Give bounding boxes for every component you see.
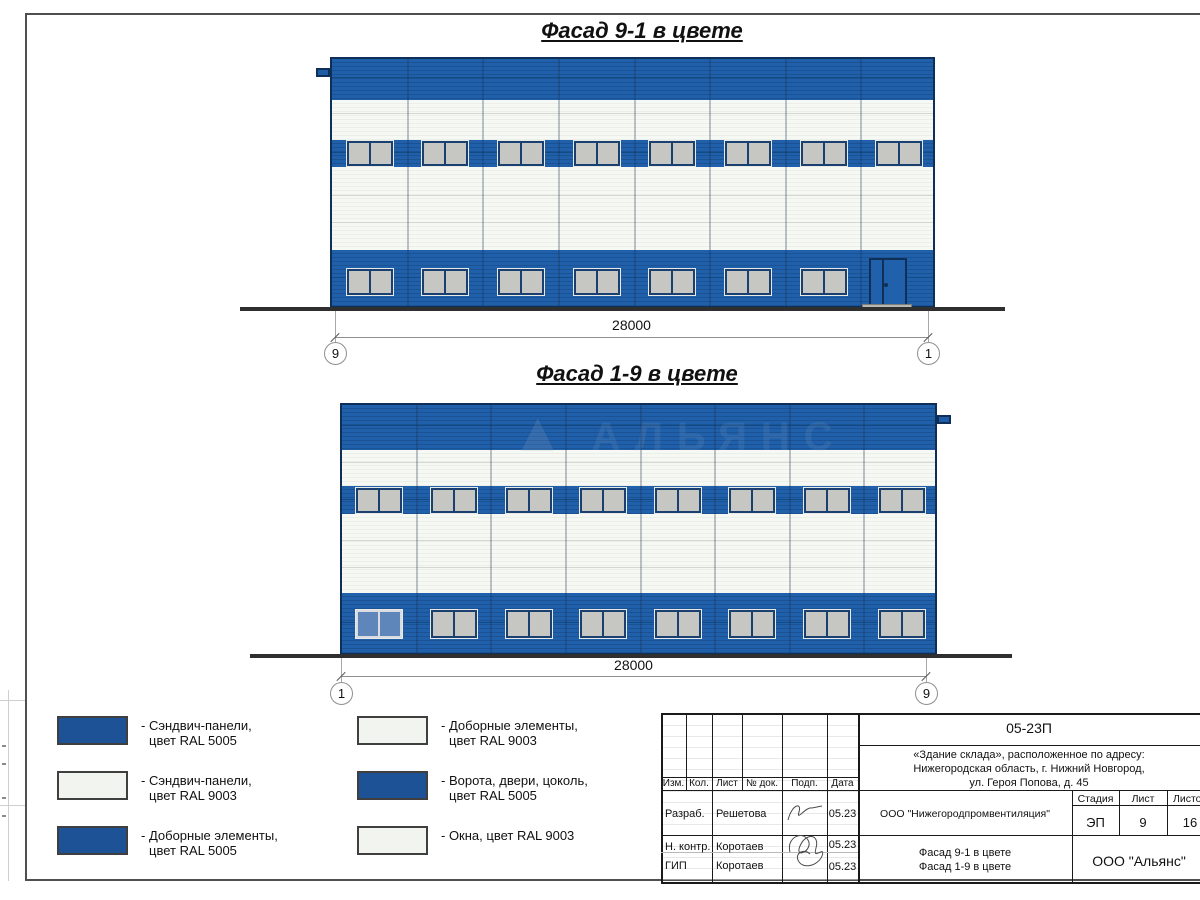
- window-mullion: [378, 490, 380, 511]
- window: [431, 610, 477, 638]
- roof-tab: [937, 415, 951, 424]
- legend-swatch-blue: [57, 716, 128, 745]
- margin-mark: [2, 763, 6, 765]
- legend-label: - Доборные элементы,цвет RAL 9003: [441, 716, 578, 748]
- signature-scribbles: [782, 796, 827, 882]
- stamp-date: 05.23: [827, 861, 858, 873]
- window-mullion: [671, 143, 673, 164]
- window-mullion: [444, 271, 446, 293]
- extension-line: [926, 658, 927, 682]
- stage-label: Стадия: [1072, 793, 1119, 805]
- org-name: ООО "Нижегородпромвентиляция": [858, 808, 1072, 820]
- stamp-col-data: Дата: [827, 778, 858, 789]
- panel-seam: [332, 195, 933, 196]
- legend-swatch-white: [357, 826, 428, 855]
- panel-joint: [558, 59, 560, 306]
- window: [801, 141, 847, 166]
- stage-value: ЭП: [1072, 815, 1119, 830]
- window-mullion: [901, 612, 903, 636]
- stamp-line: [827, 713, 828, 884]
- window: [498, 141, 544, 166]
- window-mullion: [901, 490, 903, 511]
- dimension-line: [341, 676, 926, 677]
- window: [649, 269, 695, 295]
- legend-item: - Сэндвич-панели,цвет RAL 5005: [57, 716, 252, 748]
- panel-joint: [860, 59, 862, 306]
- stamp-line: [661, 713, 663, 884]
- margin-line: [8, 690, 9, 881]
- upper-panel-band: [342, 450, 935, 486]
- drawing-title-line: Фасад 1-9 в цвете: [858, 861, 1072, 873]
- window-mullion: [528, 612, 530, 636]
- window-mullion: [453, 490, 455, 511]
- dimension-line: [335, 337, 928, 338]
- legend-swatch-white: [357, 716, 428, 745]
- window: [804, 610, 850, 638]
- panel-joint: [863, 405, 865, 653]
- window: [725, 141, 771, 166]
- window: [879, 488, 925, 513]
- panel-joint: [482, 59, 484, 306]
- stamp-col-izm: Изм.: [661, 778, 686, 789]
- panel-seam: [332, 222, 933, 223]
- stamp-line: [661, 713, 1200, 715]
- stamp-role: Н. контр.: [665, 841, 710, 853]
- stamp-col-kol: Кол.: [686, 778, 712, 789]
- window-mullion: [671, 271, 673, 293]
- project-address-line: «Здание склада», расположенное по адресу…: [858, 749, 1200, 761]
- window-mullion: [747, 143, 749, 164]
- window: [431, 488, 477, 513]
- panel-joint: [640, 405, 642, 653]
- window-mullion: [602, 490, 604, 511]
- panel-joint: [714, 405, 716, 653]
- window: [649, 141, 695, 166]
- project-address-line: ул. Героя Попова, д. 45: [858, 777, 1200, 789]
- panel-joint: [416, 405, 418, 653]
- window: [498, 269, 544, 295]
- axis-marker: 9: [324, 342, 347, 365]
- stamp-role: ГИП: [665, 860, 687, 872]
- window-mullion: [823, 143, 825, 164]
- window-mullion: [898, 143, 900, 164]
- window-mullion: [677, 612, 679, 636]
- legend-item: - Доборные элементы,цвет RAL 5005: [57, 826, 278, 858]
- margin-line: [0, 700, 25, 701]
- window-mullion: [528, 490, 530, 511]
- upper-panel-band: [332, 100, 933, 140]
- stamp-role: Разраб.: [665, 808, 705, 820]
- legend-item: - Окна, цвет RAL 9003: [357, 826, 574, 855]
- stamp-ruling: [663, 715, 858, 880]
- window: [655, 488, 701, 513]
- panel-joint: [789, 405, 791, 653]
- parapet-band: [342, 405, 935, 450]
- middle-panel-band: [332, 167, 933, 250]
- legend-label: - Сэндвич-панели,цвет RAL 5005: [141, 716, 252, 748]
- panel-joint: [785, 59, 787, 306]
- window: [655, 610, 701, 638]
- legend-item: - Сэндвич-панели,цвет RAL 9003: [57, 771, 252, 803]
- project-address-line: Нижегородская область, г. Нижний Новгоро…: [858, 763, 1200, 775]
- window-mullion: [751, 490, 753, 511]
- legend-label: - Доборные элементы,цвет RAL 5005: [141, 826, 278, 858]
- doc-number: 05-23П: [858, 720, 1200, 736]
- panel-joint: [407, 59, 409, 306]
- window: [804, 488, 850, 513]
- legend-item: - Ворота, двери, цоколь,цвет RAL 5005: [357, 771, 588, 803]
- parapet-band: [332, 59, 933, 100]
- stamp-line: [661, 790, 1200, 791]
- window-mullion: [444, 143, 446, 164]
- middle-panel-band: [342, 514, 935, 593]
- panel-joint: [490, 405, 492, 653]
- stamp-col-list: Лист: [712, 778, 742, 789]
- stamp-line: [661, 835, 1200, 836]
- stamp-name: Коротаев: [716, 860, 764, 872]
- panel-seam: [342, 425, 935, 426]
- stamp-name: Коротаев: [716, 841, 764, 853]
- drawing-title-line: Фасад 9-1 в цвете: [858, 847, 1072, 859]
- window: [347, 269, 393, 295]
- facade-drawing-9-1: 2800091: [330, 57, 935, 308]
- window: [422, 141, 468, 166]
- facade-drawing-1-9: ▲АЛЬЯНС2800019: [340, 403, 937, 655]
- window-mullion: [751, 612, 753, 636]
- sheet-label: Лист: [1119, 793, 1167, 805]
- stamp-line: [1072, 805, 1200, 806]
- legend-label: - Окна, цвет RAL 9003: [441, 826, 574, 855]
- sheet-value: 9: [1119, 815, 1167, 830]
- stamp-line: [661, 882, 1200, 884]
- building: [330, 57, 935, 308]
- dimension-label: 28000: [614, 657, 653, 673]
- window-mullion: [826, 612, 828, 636]
- window: [580, 488, 626, 513]
- axis-marker: 9: [915, 682, 938, 705]
- panel-seam: [342, 540, 935, 541]
- window: [580, 610, 626, 638]
- window: [879, 610, 925, 638]
- panel-seam: [332, 77, 933, 78]
- panel-joint: [565, 405, 567, 653]
- ground-line: [240, 307, 1005, 311]
- window-mullion: [602, 612, 604, 636]
- roof-tab: [316, 68, 330, 77]
- window-mullion: [747, 271, 749, 293]
- sheets-label: Листов: [1167, 793, 1200, 805]
- sheets-value: 16: [1167, 815, 1200, 830]
- window-mullion: [520, 143, 522, 164]
- stamp-line: [858, 745, 1200, 746]
- panel-joint: [634, 59, 636, 306]
- panel-seam: [332, 113, 933, 114]
- window: [356, 610, 402, 638]
- margin-mark: [2, 815, 6, 817]
- company-name: ООО "Альянс": [1072, 853, 1200, 869]
- window-mullion: [677, 490, 679, 511]
- legend-swatch-white: [57, 771, 128, 800]
- window: [422, 269, 468, 295]
- facade-title: Фасад 1-9 в цвете: [536, 361, 738, 387]
- panel-joint: [709, 59, 711, 306]
- stamp-date: 05.23: [827, 808, 858, 820]
- window: [729, 488, 775, 513]
- window-mullion: [826, 490, 828, 511]
- window-mullion: [823, 271, 825, 293]
- title-block: 05-23П «Здание склада», расположенное по…: [661, 713, 1200, 884]
- panel-seam: [342, 462, 935, 463]
- window-mullion: [378, 612, 380, 636]
- legend-item: - Доборные элементы,цвет RAL 9003: [357, 716, 578, 748]
- stamp-col-doc: № док.: [742, 778, 782, 789]
- entrance-door: [869, 258, 907, 308]
- window: [356, 488, 402, 513]
- extension-line: [341, 658, 342, 682]
- window-mullion: [520, 271, 522, 293]
- axis-marker: 1: [330, 682, 353, 705]
- dimension-label: 28000: [612, 317, 651, 333]
- window-mullion: [596, 143, 598, 164]
- margin-line: [0, 805, 25, 806]
- axis-marker: 1: [917, 342, 940, 365]
- stamp-line: [712, 713, 713, 884]
- window-mullion: [453, 612, 455, 636]
- window: [347, 141, 393, 166]
- legend-swatch-blue: [57, 826, 128, 855]
- window: [574, 269, 620, 295]
- window: [876, 141, 922, 166]
- door-handle: [884, 283, 888, 287]
- drawing-sheet: Фасад 9-1 в цвете 2800091 Фасад 1-9 в цв…: [0, 0, 1200, 900]
- window: [729, 610, 775, 638]
- panel-seam: [342, 567, 935, 568]
- window: [506, 610, 552, 638]
- window: [574, 141, 620, 166]
- stamp-name: Решетова: [716, 808, 766, 820]
- building: [340, 403, 937, 655]
- margin-mark: [2, 745, 6, 747]
- window-mullion: [369, 271, 371, 293]
- stamp-col-podp: Подп.: [782, 778, 827, 789]
- facade-title: Фасад 9-1 в цвете: [541, 18, 743, 44]
- window: [506, 488, 552, 513]
- legend-label: - Сэндвич-панели,цвет RAL 9003: [141, 771, 252, 803]
- legend-swatch-blue: [357, 771, 428, 800]
- window-mullion: [369, 143, 371, 164]
- margin-mark: [2, 797, 6, 799]
- window-mullion: [596, 271, 598, 293]
- legend-label: - Ворота, двери, цоколь,цвет RAL 5005: [441, 771, 588, 803]
- window: [801, 269, 847, 295]
- stamp-date: 05.23: [827, 839, 858, 851]
- window: [725, 269, 771, 295]
